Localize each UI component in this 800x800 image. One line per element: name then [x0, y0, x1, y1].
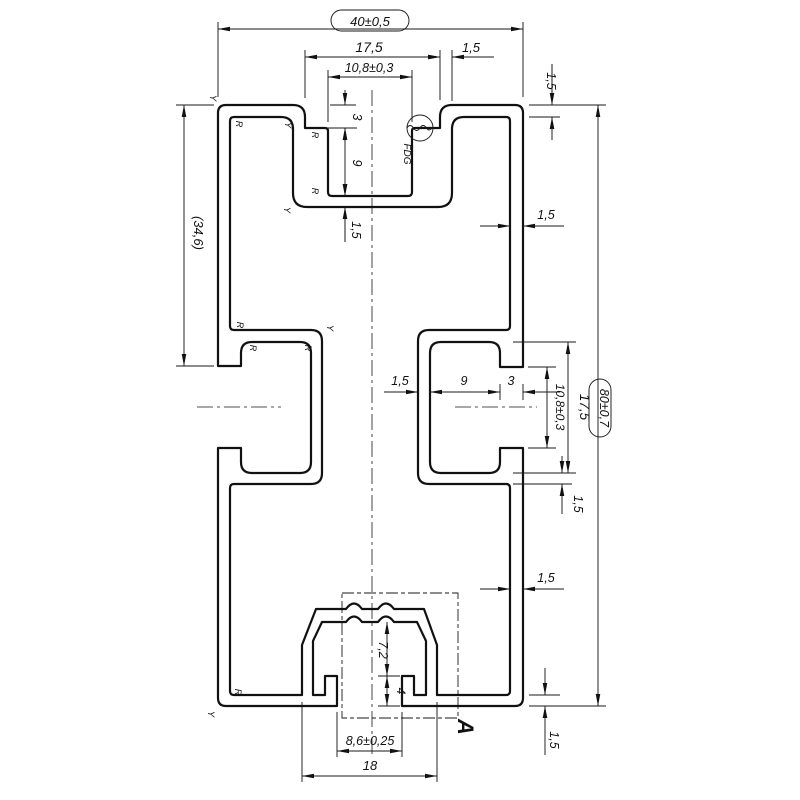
radius-mark: R — [248, 345, 258, 352]
dim-screw-slot-width: 8,6±0,25 — [346, 734, 395, 748]
chamber-outline — [230, 117, 510, 695]
dim-top-slot-floor: 1,5 — [349, 221, 363, 238]
radius-mark: R — [233, 689, 243, 696]
detail-a-label: A — [453, 718, 478, 735]
rounding-mark: Y — [207, 95, 218, 102]
dim-left-reference: (34,6) — [191, 216, 206, 250]
radius-mark: R — [235, 322, 245, 329]
dim-top-slot-depth: 9 — [350, 160, 364, 167]
rounding-mark: Y — [324, 325, 335, 332]
dim-side-slot-floor: 1,5 — [571, 495, 585, 512]
dim-top-slot-step: 3 — [350, 114, 364, 121]
radius-mark: R — [310, 188, 320, 195]
rounding-mark: Y — [205, 711, 216, 718]
dim-right-wall-lower: 1,5 — [537, 571, 554, 585]
radius-mark: R — [303, 345, 313, 352]
profile-drawing: 40±0,5 17,5 1,5 10,8±0,3 3 9 1,5 (34,6) … — [0, 0, 800, 800]
radius-mark: R — [234, 121, 244, 128]
dim-channel-width: 18 — [363, 758, 378, 773]
annotation-labels: A FDG R R R R R R R Y Y Y Y Y — [205, 95, 478, 735]
dim-side-slot-width: 9 — [461, 374, 468, 388]
dim-lip-height: 4 — [394, 688, 408, 695]
dim-side-slot-wall: 1,5 — [391, 374, 408, 388]
dim-side-slot-neck: 3 — [508, 374, 515, 388]
radius-mark: R — [310, 132, 320, 139]
dimension-labels: 40±0,5 17,5 1,5 10,8±0,3 3 9 1,5 (34,6) … — [191, 14, 611, 773]
dimension-lines — [184, 29, 598, 776]
dim-overall-width: 40±0,5 — [350, 14, 390, 29]
dim-bottom-wall: 1,5 — [547, 731, 561, 748]
rounding-mark: Y — [281, 207, 292, 214]
dim-top-slot-opening: 17,5 — [355, 39, 382, 55]
profile-outline — [218, 105, 523, 706]
centerlines — [197, 90, 537, 758]
detail-a-boundary — [342, 593, 458, 718]
dim-overall-height: 80±0,7 — [597, 389, 611, 428]
surface-mark-label: FDG — [401, 143, 412, 164]
profile-geometry — [218, 105, 523, 706]
rounding-mark: Y — [282, 122, 293, 129]
dim-right-wall-upper: 1,5 — [537, 208, 554, 222]
dim-side-slot-opening: 10,8±0,3 — [553, 384, 567, 431]
dim-top-slot-wall: 1,5 — [462, 40, 481, 55]
dim-top-slot-inner-width: 10,8±0,3 — [345, 61, 394, 75]
dim-top-wall: 1,5 — [544, 72, 558, 89]
extension-lines — [176, 22, 606, 782]
drawing-canvas: 40±0,5 17,5 1,5 10,8±0,3 3 9 1,5 (34,6) … — [0, 0, 800, 800]
dim-side-slot-height: 17,5 — [577, 394, 592, 421]
dim-channel-depth: 7,2 — [376, 641, 390, 658]
